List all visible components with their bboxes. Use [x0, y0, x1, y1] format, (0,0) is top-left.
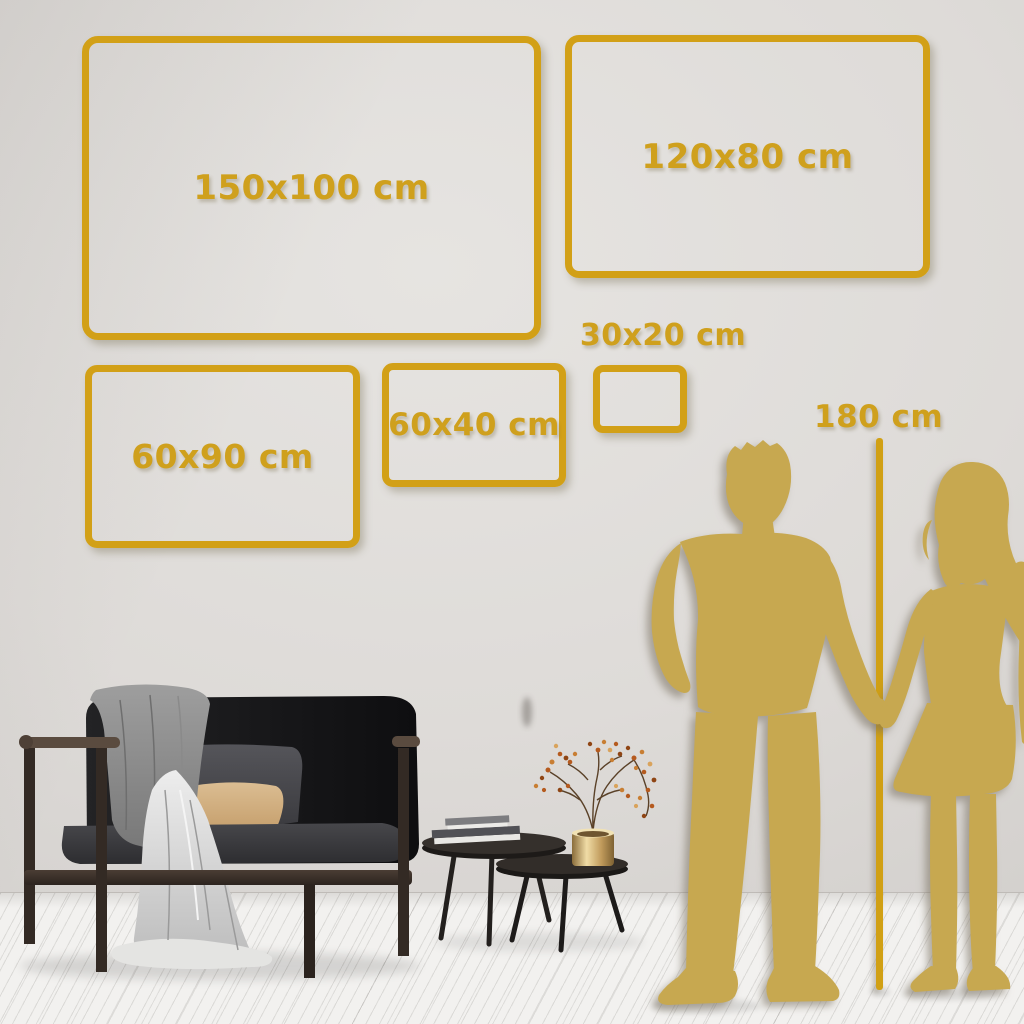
- couple-silhouette: [0, 0, 1024, 1024]
- woman-silhouette: [878, 462, 1024, 992]
- man-silhouette: [652, 440, 889, 1005]
- size-guide-scene: 150x100 cm 120x80 cm 60x90 cm 60x40 cm 3…: [0, 0, 1024, 1024]
